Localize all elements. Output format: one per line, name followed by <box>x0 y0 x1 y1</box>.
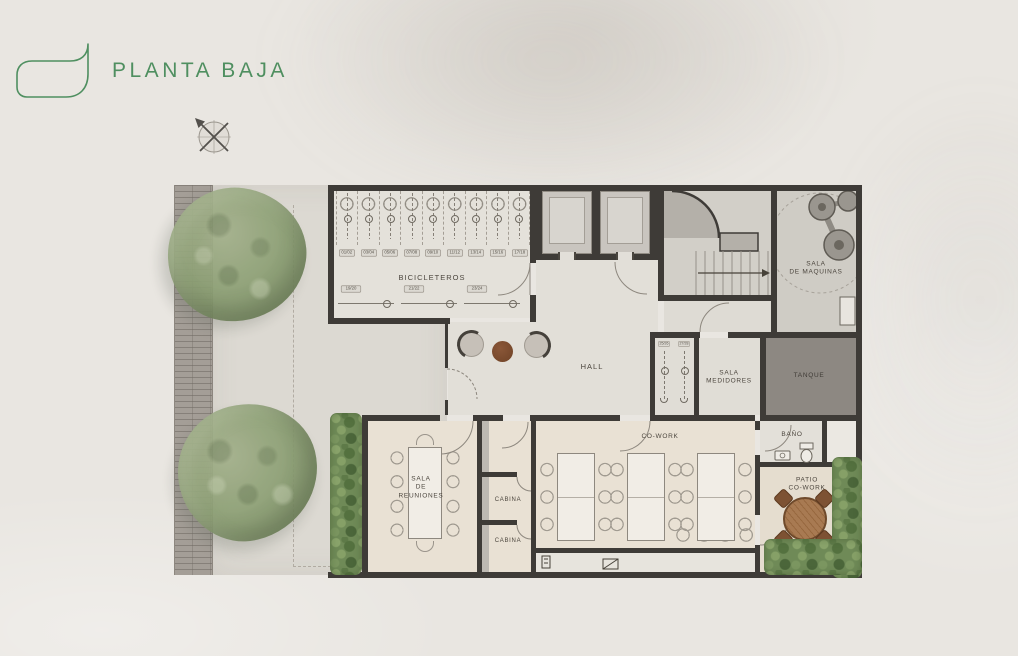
wall-segment <box>362 421 368 572</box>
wall-segment <box>477 472 517 477</box>
armchair-icon <box>524 333 549 358</box>
elevator-car <box>549 197 585 244</box>
bike-rack-icon <box>678 351 690 403</box>
bike-rack-icon <box>508 191 530 245</box>
elevator-doors <box>558 252 576 260</box>
cowork-table <box>627 453 665 541</box>
bike-rack-icon <box>357 191 378 245</box>
shaft <box>827 421 856 462</box>
glass-wall <box>445 322 448 368</box>
sala-reuniones-label: SALA DE REUNIONES <box>399 475 444 500</box>
wall-segment <box>771 190 777 332</box>
corridor <box>664 301 771 332</box>
wall-segment <box>530 295 536 322</box>
bike-stall-label: 23/24 <box>467 285 487 292</box>
bike-stall-label: 07/08 <box>404 249 420 256</box>
bike-stall-label: 27/28 <box>678 341 689 347</box>
rack-hook <box>680 398 688 403</box>
wall-segment <box>477 520 517 525</box>
stairwell <box>664 191 771 295</box>
wall-segment <box>328 318 450 324</box>
cowork-table <box>557 453 595 541</box>
wall-segment <box>650 415 755 421</box>
bike-rack-icon <box>464 298 520 310</box>
leaf-logo-icon <box>14 42 92 100</box>
elevator-block <box>536 185 658 260</box>
wall-segment <box>362 415 440 421</box>
wall-segment <box>530 191 536 263</box>
bike-stall-label: 15/16 <box>490 249 506 256</box>
room-banio <box>760 421 822 462</box>
bike-stall-label: 25/26 <box>658 341 669 347</box>
bicicleteros-label: BICICLETEROS <box>398 273 465 283</box>
bike-stall-label: 21/22 <box>404 285 424 292</box>
bike-rack-icon <box>338 298 394 310</box>
bike-rack-icon <box>379 191 400 245</box>
wall-segment <box>328 185 334 324</box>
bike-stall-label: 01/02 <box>339 249 355 256</box>
glass-wall <box>445 400 448 415</box>
chair-column <box>737 459 753 535</box>
floor-plan-page: PLANTA BAJA <box>0 0 1018 656</box>
cowork-label: CO-WORK <box>641 433 678 441</box>
bike-stalls <box>336 191 530 245</box>
wall-segment <box>694 338 699 415</box>
cabina-2-label: CABINA <box>495 538 522 546</box>
hall-label: HALL <box>581 362 604 372</box>
rack-hook <box>660 398 668 403</box>
bike-stall-label: 03/04 <box>361 249 377 256</box>
header: PLANTA BAJA <box>14 42 288 100</box>
bike-stall-label: 17/18 <box>512 249 528 256</box>
cloud-shadow <box>270 0 830 210</box>
bike-rack-icon <box>658 351 670 403</box>
wall-segment <box>477 421 482 572</box>
cowork-table <box>697 453 735 541</box>
bike-rack-icon <box>401 298 457 310</box>
chair-column <box>539 459 555 535</box>
chair-column <box>679 459 695 535</box>
wall-segment <box>755 421 760 430</box>
bike-rack-icon <box>422 191 443 245</box>
tanque-label: TANQUE <box>794 372 825 380</box>
bike-stall-label: 19/20 <box>341 285 361 292</box>
room-cabina-2 <box>482 525 531 572</box>
wall-segment <box>658 295 775 301</box>
elevator-2-icon <box>600 191 650 254</box>
bike-rack-icon <box>486 191 507 245</box>
north-compass-icon <box>191 114 237 160</box>
bike-stall-labels: 01/02 03/04 05/06 07/08 09/10 11/12 13/1… <box>336 248 530 257</box>
elevator-doors <box>616 252 634 260</box>
patio-cowork-label: PATIO CO-WORK <box>788 477 825 494</box>
cabina-1-label: CABINA <box>495 497 522 505</box>
bike-stall-label: 13/14 <box>468 249 484 256</box>
wall-segment <box>728 332 862 338</box>
elevator-car <box>607 197 643 244</box>
coffee-table-icon <box>492 341 513 362</box>
bike-stall-label: 11/12 <box>447 249 463 256</box>
planter-hedge <box>764 539 862 575</box>
armchair-icon <box>459 332 484 357</box>
chair-column <box>445 450 461 538</box>
planter-hedge <box>330 413 362 575</box>
bike-stall-label: 05/06 <box>382 249 398 256</box>
chair-column <box>609 459 625 535</box>
bike-rack-icon <box>400 191 421 245</box>
chair-icon <box>416 434 434 445</box>
floor-plan: 01/02 03/04 05/06 07/08 09/10 11/12 13/1… <box>328 185 862 578</box>
wall-segment <box>650 338 655 415</box>
banio-label: BAÑO <box>781 431 802 439</box>
elevator-1-icon <box>542 191 592 254</box>
bike-rack-icon <box>465 191 486 245</box>
wall-segment <box>650 332 700 338</box>
wall-segment <box>530 415 620 421</box>
bike-rack-icon <box>443 191 464 245</box>
property-dashed-line <box>293 566 331 567</box>
page-title: PLANTA BAJA <box>112 59 288 83</box>
wall-segment <box>822 421 827 462</box>
wall-segment <box>760 415 862 421</box>
sala-medidores-label: SALA MEDIDORES <box>706 370 752 387</box>
cabina-corridor <box>482 421 531 477</box>
sala-maquinas-label: SALA DE MAQUINAS <box>789 261 842 278</box>
cowork-strip <box>536 553 760 572</box>
bike-stall-label: 09/10 <box>425 249 441 256</box>
wall-segment <box>536 548 760 553</box>
cabina-closet-band <box>482 421 489 572</box>
wall-segment <box>658 185 664 301</box>
bike-rack-icon <box>336 191 357 245</box>
